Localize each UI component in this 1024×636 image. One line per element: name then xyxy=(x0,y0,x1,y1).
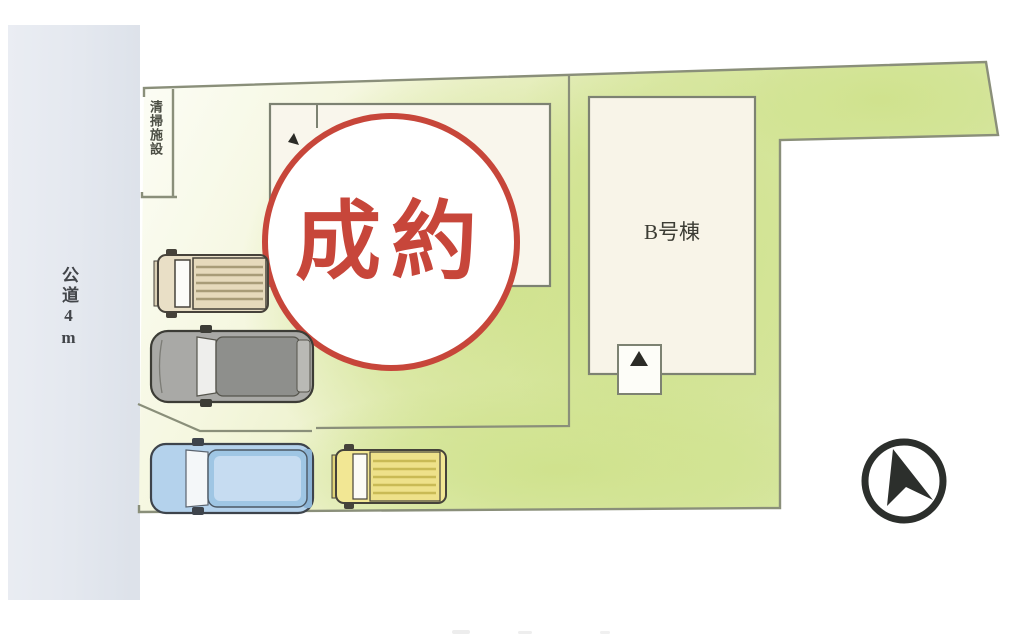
minivan-blue-windshield xyxy=(186,450,208,507)
site-plan-page: 公道4m 清掃施設 B号棟 成約 xyxy=(0,0,1024,636)
sedan-gray-mirror-bottom xyxy=(200,399,212,407)
vehicle-minivan-blue xyxy=(151,438,313,515)
vehicle-sedan-gray xyxy=(151,325,313,407)
sedan-gray-roof xyxy=(216,337,300,396)
scan-artifacts xyxy=(452,630,610,634)
public-road xyxy=(8,25,140,600)
building-b xyxy=(589,97,755,394)
sedan-gray-rear-window xyxy=(297,340,310,392)
minivan-blue-mirror-bottom xyxy=(192,507,204,515)
van-beige-windshield xyxy=(175,260,190,307)
compass xyxy=(865,442,943,520)
sold-stamp-circle xyxy=(265,116,517,368)
sedan-gray-windshield xyxy=(197,337,216,396)
van-yellow-windshield xyxy=(353,454,367,499)
north-arrow-icon xyxy=(887,449,933,506)
van-beige-mirror-top xyxy=(166,249,177,256)
van-beige-mirror-bottom xyxy=(166,311,177,318)
van-yellow-mirror-top xyxy=(344,444,354,451)
sedan-gray-mirror-top xyxy=(200,325,212,333)
vehicle-cargo-van-yellow xyxy=(332,444,446,509)
building-b-outline xyxy=(589,97,755,374)
site-plan-drawing xyxy=(0,0,1024,636)
van-yellow-mirror-bottom xyxy=(344,502,354,509)
minivan-blue-roof-glass xyxy=(214,456,301,501)
vehicle-cargo-van-beige xyxy=(154,249,268,318)
minivan-blue-mirror-top xyxy=(192,438,204,446)
